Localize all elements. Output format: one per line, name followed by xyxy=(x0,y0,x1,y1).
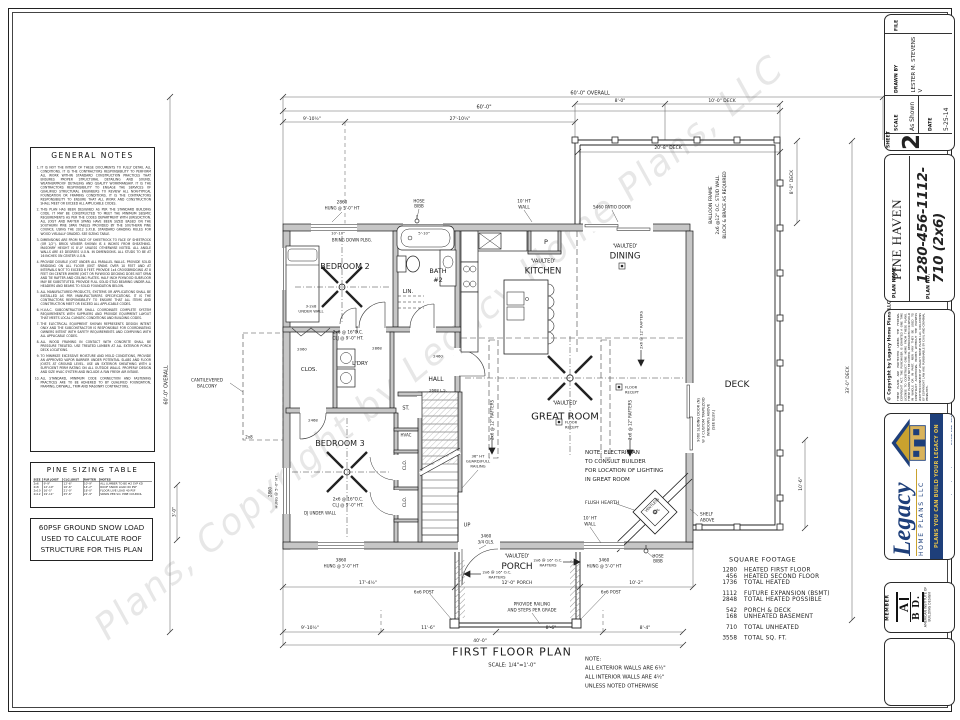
general-notes-box: GENERAL NOTES IT IS NOT THE INTENT OF TH… xyxy=(30,147,155,452)
titleblock-empty-box xyxy=(884,638,955,706)
plan-annotation: 5'-10" xyxy=(418,231,429,236)
plan-annotation: #2 xyxy=(433,276,443,284)
drawn-by-label: DRAWN BY xyxy=(894,64,899,92)
plan-annotation: P xyxy=(544,238,548,246)
plan-annotation: BIBB xyxy=(653,559,662,564)
general-note-item: ALL MANUFACTURED PRODUCTS, SYSTEMS OR AP… xyxy=(41,290,152,306)
plan-annotation: 8'-0" DECK xyxy=(790,170,795,194)
square-footage-row: 2848TOTAL HEATED POSSIBLE xyxy=(708,596,888,602)
pine-table-row: 2x1219'-11"25'-6"21'-9"SPANS PER SO. PIN… xyxy=(33,493,152,497)
plan-annotation: 6x6 POST xyxy=(601,590,621,595)
wall-note: NOTE: xyxy=(585,656,601,662)
plan-annotation: FLOOR xyxy=(565,420,577,425)
titleblock-copyright-box: © Copyright by Legacy Home Plans LLC THE… xyxy=(884,309,955,404)
titleblock-info-box: SHEET 2 SCALE As Shown DATE 5-25-14 DRAW… xyxy=(884,14,955,151)
square-footage-rows: 1280HEATED FIRST FLOOR456HEATED SECOND F… xyxy=(708,567,888,641)
logo-tagline: PLANS YOU CAN BUILD YOUR LEGACY ON xyxy=(934,425,940,549)
plan-annotation: RECEPT xyxy=(565,425,579,430)
sqft-label: TOTAL UNHEATED xyxy=(737,624,799,630)
drawing-sheet: Plans, Copyright by Legacy Home Plans, L… xyxy=(0,0,960,720)
electrician-note: NOTE: ELECTRICIAN xyxy=(585,449,640,456)
sqft-value: 1736 xyxy=(708,579,737,585)
general-note-item: DIMENSIONS ARE FROM FACE OF SHEETROCK TO… xyxy=(41,238,152,258)
general-note-item: THIS PLAN HAS BEEN DESIGNED AS PER THE S… xyxy=(41,208,152,236)
plan-annotation: 8'-4" xyxy=(640,626,651,631)
plan-annotation: 17'-4½" xyxy=(359,581,377,586)
plan-annotation: 3-2x8 xyxy=(306,304,317,309)
plan-annotation: 20'-8" DECK xyxy=(654,146,681,151)
square-footage-row: 710TOTAL UNHEATED xyxy=(708,624,888,630)
aibd-letters-bd: B D. xyxy=(911,593,922,623)
scale-cell: SCALE As Shown xyxy=(885,96,919,133)
general-note-item: ALL WOOD FRAMING IN CONTACT WITH CONCRET… xyxy=(41,341,152,353)
square-footage-row: 3558TOTAL SQ. FT. xyxy=(708,635,888,641)
plan-annotation: 10'-6" xyxy=(799,477,804,491)
date-cell: DATE 5-25-14 xyxy=(919,96,952,133)
plan-annotation: CLOS. xyxy=(301,366,317,373)
plan-annotation: 2x6 @ 16"O.C. xyxy=(333,330,364,335)
plan-annotation: 11'-6" xyxy=(421,626,435,631)
sqft-value: 2848 xyxy=(708,596,737,602)
date-label: DATE xyxy=(928,117,933,131)
sqft-value: 3558 xyxy=(708,635,737,641)
pine-sizing-table-box: PINE SIZING TABLE SIZEFLR JOISTCLG JOIST… xyxy=(30,462,155,508)
cantilevered-balcony-outline xyxy=(243,333,283,440)
plan-annotation: 2060 xyxy=(297,347,307,352)
kitchen-fixtures xyxy=(461,231,554,354)
plan-annotation: CANTILEVERED xyxy=(191,378,223,383)
general-note-item: TO MINIMIZE EXCESSIVE MOISTURE AND MOLD … xyxy=(41,355,152,375)
aibd-logo: A B D. xyxy=(896,593,924,623)
plan-annotation: 6x6 POST xyxy=(414,590,434,595)
titleblock-plan-box: PLAN NAME PINE HAVEN PLAN NO. 1280-456-1… xyxy=(884,154,955,302)
square-footage-title: SQUARE FOOTAGE xyxy=(729,556,888,564)
plan-annotation: 'VAULTED' xyxy=(612,243,637,249)
laundry-fixtures xyxy=(337,349,355,387)
plan-annotation: ST. xyxy=(402,405,409,411)
plan-annotation: RECEPT xyxy=(625,390,639,395)
plan-annotation: 10'-2" xyxy=(629,581,643,586)
plan-annotation: BALLOON FRAME xyxy=(709,186,714,223)
scale-value: As Shown xyxy=(909,98,916,131)
plan-annotation: LIN. xyxy=(403,288,414,295)
plan-number-label: PLAN NO. xyxy=(926,292,931,299)
plan-annotation: 2x6 @ 12" RAFTERS xyxy=(490,400,495,440)
date-value: 5-25-14 xyxy=(943,98,950,131)
plan-annotation: HUNG @ 5'-0" HT xyxy=(324,564,359,569)
sqft-label: UNHEATED BASEMENT xyxy=(737,613,813,619)
plan-annotation: CLO. xyxy=(403,460,408,470)
plan-annotation: 40'-0" xyxy=(473,639,487,644)
square-footage-row: 1736TOTAL HEATED xyxy=(708,579,888,585)
logo-brand-name: Legacy xyxy=(891,469,915,556)
plan-annotation: 10' HT xyxy=(517,199,531,204)
plan-annotation: 2x6 @ 16" O.C. xyxy=(534,558,563,563)
plan-annotation: DJ UNDER WALL xyxy=(304,511,336,516)
legacy-house-logo-icon xyxy=(888,417,928,469)
plan-annotation: 'VAULTED' xyxy=(504,553,529,559)
plan-annotation: 2668 L.S. xyxy=(429,388,447,393)
plan-name-label: PLAN NAME xyxy=(892,291,897,298)
general-notes-title: GENERAL NOTES xyxy=(31,151,154,160)
plan-annotation: 2868 xyxy=(372,346,382,351)
member-label: MEMBER xyxy=(885,594,890,621)
plan-annotation: BLOCK & BRACE AS REQUIRED xyxy=(723,171,728,238)
bath-fixtures xyxy=(397,226,456,308)
plan-annotation: 60'-0" xyxy=(476,104,491,110)
plan-scale: SCALE: 1/4"=1'-0" xyxy=(488,662,535,668)
plan-annotation: ABOVE xyxy=(700,518,714,523)
plan-annotation: HUNG @ 5'-0" HT xyxy=(325,206,360,211)
plan-annotation: RAFTERS xyxy=(540,563,557,568)
file-label: FILE xyxy=(894,19,899,30)
titleblock-logo-box: Legacy HOME PLANS LLC PLANS YOU CAN BUIL… xyxy=(884,413,955,560)
sqft-label: TOTAL HEATED POSSIBLE xyxy=(737,596,822,602)
plan-annotation: CLO. xyxy=(403,497,408,507)
plan-annotation: 2x8 xyxy=(245,435,252,440)
member-caption: AMERICAN INSTITUTE OF BUILDING DESIGN xyxy=(924,584,932,631)
plan-annotation: RAFTERS xyxy=(489,575,506,580)
general-note-item: H.V.A.C. SUBCONTRACTOR SHALL COORDINATE … xyxy=(41,309,152,321)
ceiling-fan-bedroom3 xyxy=(292,418,390,538)
plan-annotation: 3'-0" xyxy=(172,507,177,517)
sqft-value: 168 xyxy=(708,613,737,619)
plan-annotation: HOSE xyxy=(413,199,424,204)
general-notes-list: IT IS NOT THE INTENT OF THESE DOCUMENTS … xyxy=(34,166,151,389)
plan-annotation: 27'-10½" xyxy=(450,117,471,122)
aibd-letter-a: A xyxy=(896,603,911,612)
stairs xyxy=(420,392,460,542)
logo-contact: www.legacyhomeplans.com • BARTLETT, TENN… xyxy=(951,414,952,506)
plan-title: FIRST FLOOR PLAN xyxy=(452,646,572,659)
plan-annotation: 10'-0" DECK xyxy=(708,99,735,104)
square-footage-row: 168UNHEATED BASEMENT xyxy=(708,613,888,619)
plan-annotation: GUARD/FULL xyxy=(466,459,490,464)
square-footage-summary: SQUARE FOOTAGE 1280HEATED FIRST FLOOR456… xyxy=(708,556,888,691)
pine-sizing-table: SIZEFLR JOISTCLG JOISTRAFTERNOTES 2x69'-… xyxy=(33,478,152,496)
copyright-body: THESE PLANS ARE PROTECTED UNDER THE FEDE… xyxy=(897,313,930,401)
plan-annotation: 8'-0" xyxy=(615,99,626,104)
plan-annotation: FLOOR xyxy=(625,385,637,390)
plan-annotation: UNLESS NOTED OTHERWISE xyxy=(585,683,658,689)
plan-annotation: 'VAULTED' xyxy=(530,258,555,264)
plan-annotation: 5460 PATIO DOOR xyxy=(593,205,631,210)
room-label-deck: DECK xyxy=(725,379,750,390)
general-note-item: THE ELECTRICAL EQUIPMENT SHOWN REPRESENT… xyxy=(41,323,152,339)
plan-annotation: CLJ @ 9'-0" HT. xyxy=(332,503,363,508)
titleblock-member-box: MEMBER A B D. AMERICAN INSTITUTE OF BUIL… xyxy=(884,582,955,633)
plan-annotation: 2x6 @ 12" RAFTERS xyxy=(628,400,633,440)
sheet-number-cell: SHEET 2 xyxy=(885,133,952,150)
plan-annotation: 10' HT xyxy=(583,516,597,521)
plan-annotation: HALL xyxy=(428,376,443,383)
plan-annotation: 33'-0" DECK xyxy=(846,366,851,393)
plan-annotation: 2x6 @ 16" O.C. xyxy=(483,570,512,575)
plan-annotation: 9060 SLIDING DOOR (N) xyxy=(696,398,701,442)
sheet-number: 2 xyxy=(899,134,925,150)
plan-annotation: 9'-10½" xyxy=(301,626,319,631)
room-label-bath-2: BATH xyxy=(429,267,446,275)
plan-annotation: W 3 CUSTOM TRAPEZOID xyxy=(701,397,706,442)
plan-annotation: BRING DOWN PLBG. xyxy=(332,238,372,243)
plan-annotation: WALL xyxy=(518,205,529,210)
room-label-bedroom-3: BEDROOM 3 xyxy=(315,438,364,448)
plan-annotation: 2x6 @12" O.C. STUD WALL xyxy=(716,175,721,234)
plan-annotation: HUNG @ 5'-0" HT xyxy=(274,475,279,508)
plan-annotation: UP xyxy=(464,522,471,528)
plan-annotation: UNDER WALL xyxy=(298,309,323,314)
plan-annotation: ALL EXTERIOR WALLS ARE 6½" xyxy=(585,665,666,671)
fireplace-wall xyxy=(611,473,692,552)
plan-annotation: 36" HT xyxy=(472,454,485,459)
plan-annotation: HOSE xyxy=(652,554,663,559)
plan-annotation: 2860 xyxy=(268,487,273,497)
plan-annotation: SHELF xyxy=(700,512,713,517)
room-label-kitchen: KITCHEN xyxy=(525,266,562,276)
plan-annotation: FOR LOCATION OF LIGHTING xyxy=(585,467,663,474)
plan-annotation: 60'-0" OVERALL xyxy=(570,90,609,96)
plan-annotation: WALL xyxy=(584,522,595,527)
general-note-item: PROVIDE DOUBLE JOIST UNDER ALL PARALLEL … xyxy=(41,260,152,288)
sheet-label: SHEET xyxy=(886,131,891,148)
plan-annotation: 10'-10" xyxy=(331,231,345,236)
file-cell: FILE xyxy=(885,10,952,33)
plan-annotation: 3460 xyxy=(599,558,610,563)
plan-annotation: IN GREAT ROOM xyxy=(585,476,630,483)
general-note-item: ALL STANDARD, MINIMUM CODE CONNECTION AN… xyxy=(41,377,152,389)
room-label-bedroom-2: BEDROOM 2 xyxy=(320,261,369,271)
plan-annotation: RAILING xyxy=(470,464,485,469)
plan-annotation: 9'-10½" xyxy=(303,117,321,122)
plan-annotation: L'DRY xyxy=(352,360,368,367)
plan-annotation: ALL INTERIOR WALLS ARE 4½" xyxy=(585,674,664,680)
room-label-dining: DINING xyxy=(610,251,641,261)
plan-annotation: FLUSH HEARTH xyxy=(585,501,619,506)
general-note-item: IT IS NOT THE INTENT OF THESE DOCUMENTS … xyxy=(41,166,152,206)
plan-annotation: 60'-0" OVERALL xyxy=(163,365,169,404)
plan-annotation: HVAC xyxy=(401,433,412,438)
logo-brand-sub: HOME PLANS LLC xyxy=(916,469,925,556)
plan-annotation: AND STEPS PER GRADE xyxy=(507,608,556,613)
sqft-label: TOTAL HEATED xyxy=(737,579,790,585)
snow-load-note-box: 60PSF GROUND SNOW LOAD USED TO CALCULATE… xyxy=(30,518,153,561)
scale-label: SCALE xyxy=(894,114,899,131)
plan-annotation: HUNG @ 5'-0" HT xyxy=(587,564,622,569)
plan-annotation: WINDOWS ABOVE xyxy=(706,404,711,436)
plan-number: 1280-456-1112-710 (2x6) xyxy=(915,158,947,283)
logo-tagline-banner: PLANS YOU CAN BUILD YOUR LEGACY ON xyxy=(930,414,943,559)
plan-annotation: TO CONSULT BUILDER xyxy=(585,458,646,465)
plan-annotation: 3460 xyxy=(481,534,492,539)
plan-annotation: 2x6 @ 12" RAFTERS xyxy=(639,311,644,349)
plan-annotation: 2860 xyxy=(337,200,348,205)
plan-annotation: 8'-6" xyxy=(546,626,557,631)
plan-annotation: BALCONY xyxy=(197,384,217,389)
plan-annotation: 2460 xyxy=(433,354,443,359)
plan-annotation: PROVIDE RAILING xyxy=(514,602,551,607)
plan-annotation: BIBB xyxy=(414,204,423,209)
plan-annotation: 2468 xyxy=(308,418,318,423)
plan-annotation: 'VAULTED' xyxy=(552,400,577,406)
sqft-value: 710 xyxy=(708,624,737,630)
plan-annotation: (SEE ELEV.) xyxy=(711,410,716,430)
drawn-by-cell: DRAWN BY LESTER M. STEVENS V xyxy=(885,33,952,95)
plan-annotation: CLJ @ 9'-0" HT. xyxy=(332,336,363,341)
plan-annotation: 3860 xyxy=(336,558,347,563)
plan-annotation: 3/4 GLS. xyxy=(478,540,495,545)
sqft-label: TOTAL SQ. FT. xyxy=(737,635,787,641)
drawn-by-value: LESTER M. STEVENS V xyxy=(911,36,925,93)
plan-annotation: 2x6 @ 16"O.C. xyxy=(333,497,364,502)
copyright-title: © Copyright by Legacy Home Plans LLC xyxy=(887,357,892,402)
pine-sizing-table-title: PINE SIZING TABLE xyxy=(31,466,154,474)
plan-annotation: 12'-0" PORCH xyxy=(502,581,533,586)
